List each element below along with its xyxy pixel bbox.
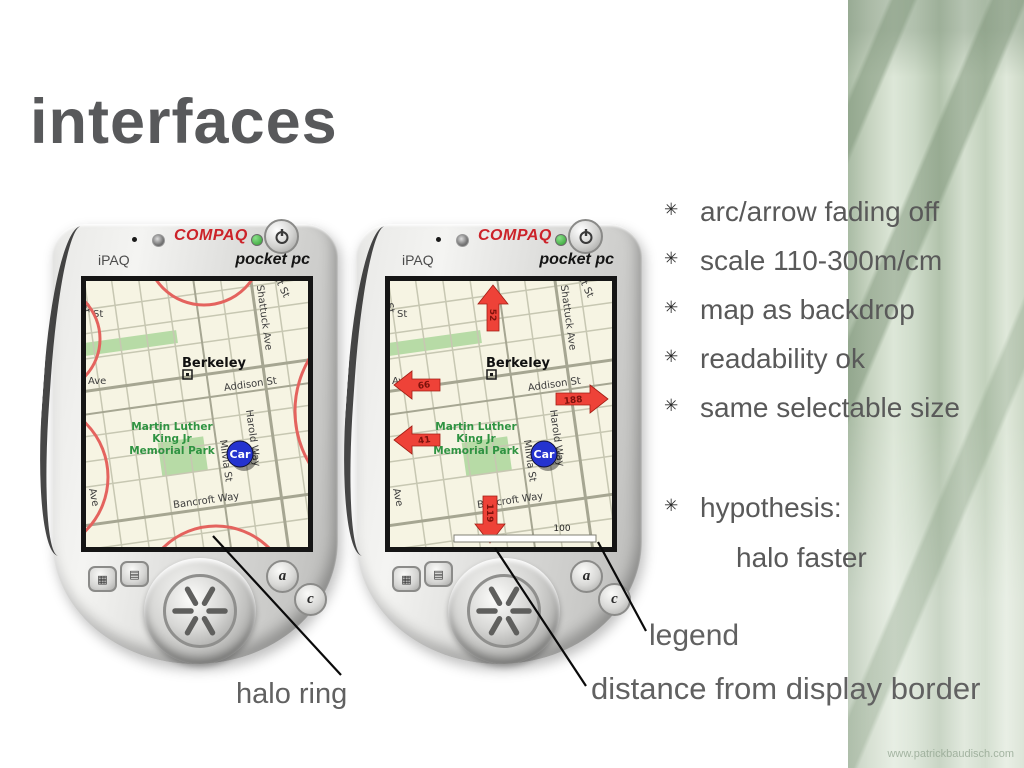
svg-text:Martin Luther: Martin Luther [435, 421, 517, 433]
quick-c-icon: c [611, 591, 618, 608]
svg-text:Berkeley: Berkeley [182, 356, 247, 371]
star-bullet-icon: ✳ [664, 496, 700, 516]
star-bullet-icon: ✳ [664, 298, 700, 318]
calendar-icon: ▦ [97, 573, 107, 586]
power-led [251, 234, 263, 246]
list-item: ✳arc/arrow fading off [664, 196, 939, 228]
scale-value: 100 [553, 524, 570, 534]
background-photo-strip: www.patrickbaudisch.com [848, 0, 1024, 768]
quick-a-icon: a [583, 568, 591, 585]
svg-text:52: 52 [487, 309, 497, 322]
quick-launch-c-button: c [294, 583, 327, 616]
svg-text:King Jr: King Jr [456, 433, 496, 445]
tasks-button: ▤ [120, 561, 149, 587]
watermark: www.patrickbaudisch.com [887, 748, 1014, 760]
list-subitem: halo faster [736, 542, 867, 574]
dpad-star-icon [471, 578, 537, 644]
svg-text:66: 66 [417, 380, 431, 392]
list-item: ✳same selectable size [664, 392, 960, 424]
quick-launch-c-button: c [598, 583, 631, 616]
star-bullet-icon: ✳ [664, 249, 700, 269]
svg-text:King Jr: King Jr [152, 433, 192, 445]
power-led [555, 234, 567, 246]
street-label: Ave [88, 376, 106, 387]
list-item: ✳scale 110-300m/cm [664, 245, 942, 277]
quick-c-icon: c [307, 591, 314, 608]
quick-a-icon: a [279, 568, 287, 585]
mic-dot [132, 237, 137, 242]
device-screen: Addison St Bancroft Way Shattuck Ave Mil… [81, 276, 313, 552]
quick-launch-a-button: a [266, 560, 299, 593]
list-item: ✳map as backdrop [664, 294, 915, 326]
svg-text:Memorial Park: Memorial Park [433, 445, 520, 457]
power-button [264, 219, 299, 254]
speaker-icon [456, 234, 469, 247]
platform-logo: pocket pc [235, 251, 310, 269]
star-bullet-icon: ✳ [664, 200, 700, 220]
brand-logo: COMPAQ [174, 227, 248, 245]
dpad-center [163, 574, 237, 648]
model-label: iPAQ [98, 252, 130, 268]
map-berkeley-halo: Addison St Bancroft Way Shattuck Ave Mil… [86, 281, 308, 547]
pda-device-halo: COMPAQ iPAQ pocket pc [52, 224, 338, 664]
dpad-star-icon [167, 578, 233, 644]
distance-label: distance from display border [591, 671, 980, 707]
legend-label: legend [649, 619, 739, 653]
calendar-button: ▦ [392, 566, 421, 592]
page-title: interfaces [30, 86, 338, 158]
map-berkeley-arrows: Addison St Bancroft Way Shattuck Ave Mil… [390, 281, 612, 547]
quick-launch-a-button: a [570, 560, 603, 593]
svg-text:Car: Car [534, 448, 555, 461]
svg-text:Memorial Park: Memorial Park [129, 445, 216, 457]
halo-ring-label: halo ring [236, 678, 347, 711]
power-button [568, 219, 603, 254]
device-screen: Addison St Bancroft Way Shattuck Ave Mil… [385, 276, 617, 552]
tasks-icon: ▤ [433, 568, 443, 581]
tasks-icon: ▤ [129, 568, 139, 581]
calendar-icon: ▦ [401, 573, 411, 586]
list-item-hypothesis: ✳hypothesis: [664, 492, 842, 524]
mic-dot [436, 237, 441, 242]
svg-text:Martin Luther: Martin Luther [131, 421, 213, 433]
model-label: iPAQ [402, 252, 434, 268]
svg-text:Berkeley: Berkeley [486, 356, 551, 371]
calendar-button: ▦ [88, 566, 117, 592]
tasks-button: ▤ [424, 561, 453, 587]
dpad-button [144, 558, 256, 664]
speaker-icon [152, 234, 165, 247]
svg-text:Car: Car [230, 448, 251, 461]
pda-device-arrows: COMPAQ iPAQ pocket pc [356, 224, 642, 664]
dpad-button [448, 558, 560, 664]
platform-logo: pocket pc [539, 251, 614, 269]
star-bullet-icon: ✳ [664, 396, 700, 416]
svg-text:188: 188 [563, 395, 583, 407]
svg-text:119: 119 [484, 504, 494, 523]
star-bullet-icon: ✳ [664, 347, 700, 367]
street-label: St [397, 309, 407, 320]
brand-logo: COMPAQ [478, 227, 552, 245]
power-icon [274, 228, 290, 245]
power-icon [578, 228, 594, 245]
dpad-center [467, 574, 541, 648]
list-item: ✳readability ok [664, 343, 865, 375]
